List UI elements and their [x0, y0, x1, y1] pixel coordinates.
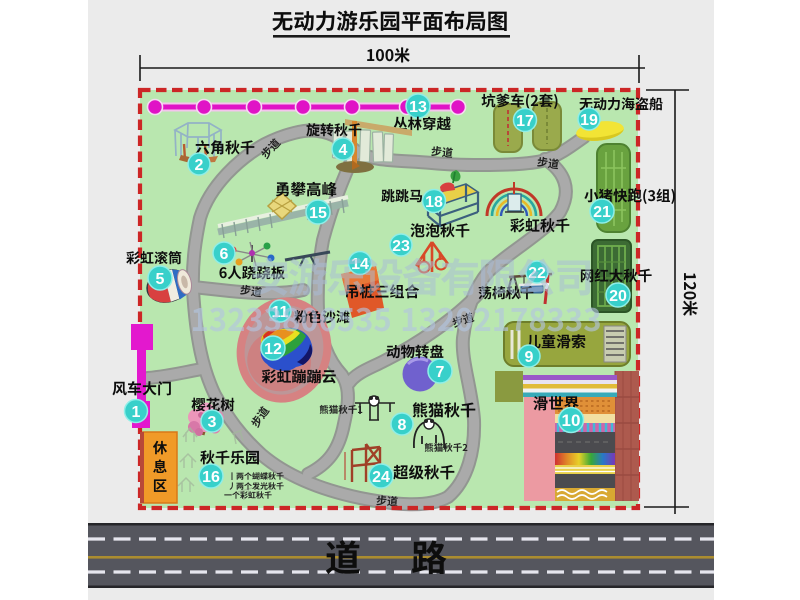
svg-text:坑爹车(2套): 坑爹车(2套)	[481, 90, 559, 111]
svg-text:动物转盘: 动物转盘	[386, 341, 444, 362]
svg-text:18: 18	[425, 194, 443, 211]
svg-text:8: 8	[398, 417, 407, 434]
svg-text:6: 6	[220, 246, 229, 263]
svg-text:勇攀高峰: 勇攀高峰	[275, 178, 338, 200]
svg-text:熊猫秋千2: 熊猫秋千2	[424, 440, 468, 454]
svg-text:休: 休	[153, 437, 168, 458]
svg-text:息: 息	[153, 456, 168, 477]
svg-text:120米: 120米	[679, 272, 703, 316]
svg-text:7: 7	[436, 364, 445, 381]
svg-text:旋转秋千: 旋转秋千	[306, 120, 362, 140]
svg-text:区: 区	[153, 475, 168, 496]
svg-text:熊猫秋千: 熊猫秋千	[412, 397, 476, 421]
svg-text:4: 4	[339, 142, 348, 159]
svg-text:21: 21	[593, 204, 611, 221]
svg-text:10: 10	[562, 411, 581, 430]
svg-text:17: 17	[516, 113, 534, 130]
svg-text:5: 5	[156, 271, 165, 288]
svg-text:熊猫秋千1: 熊猫秋千1	[319, 402, 363, 416]
svg-text:24: 24	[372, 469, 390, 486]
svg-text:9: 9	[525, 349, 534, 366]
svg-text:12: 12	[264, 341, 282, 358]
svg-text:跳跳马: 跳跳马	[381, 186, 423, 206]
svg-text:超级秋千: 超级秋千	[393, 461, 455, 483]
svg-text:100米: 100米	[366, 42, 410, 66]
svg-text:19: 19	[580, 112, 598, 129]
svg-text:路: 路	[411, 530, 447, 582]
svg-text:1: 1	[132, 404, 141, 421]
svg-text:泡泡秋千: 泡泡秋千	[410, 220, 470, 241]
svg-text:道: 道	[325, 530, 361, 582]
svg-text:无动力游乐园平面布局图: 无动力游乐园平面布局图	[272, 5, 509, 36]
svg-text:一个彩虹秋千: 一个彩虹秋千	[224, 490, 272, 501]
svg-text:16: 16	[202, 469, 220, 486]
svg-text:彩虹滚筒: 彩虹滚筒	[126, 248, 182, 268]
svg-text:风车大门: 风车大门	[112, 378, 172, 399]
svg-text:彩虹秋千: 彩虹秋千	[510, 215, 570, 236]
svg-text:13233806535 13202178333: 13233806535 13202178333	[191, 295, 602, 340]
svg-text:步道: 步道	[430, 143, 454, 161]
svg-text:彩虹蹦蹦云: 彩虹蹦蹦云	[261, 366, 336, 387]
svg-text:15: 15	[309, 205, 327, 222]
svg-text:3: 3	[208, 414, 217, 431]
svg-text:2: 2	[195, 157, 204, 174]
svg-text:20: 20	[609, 288, 627, 305]
svg-text:步道: 步道	[536, 154, 560, 173]
